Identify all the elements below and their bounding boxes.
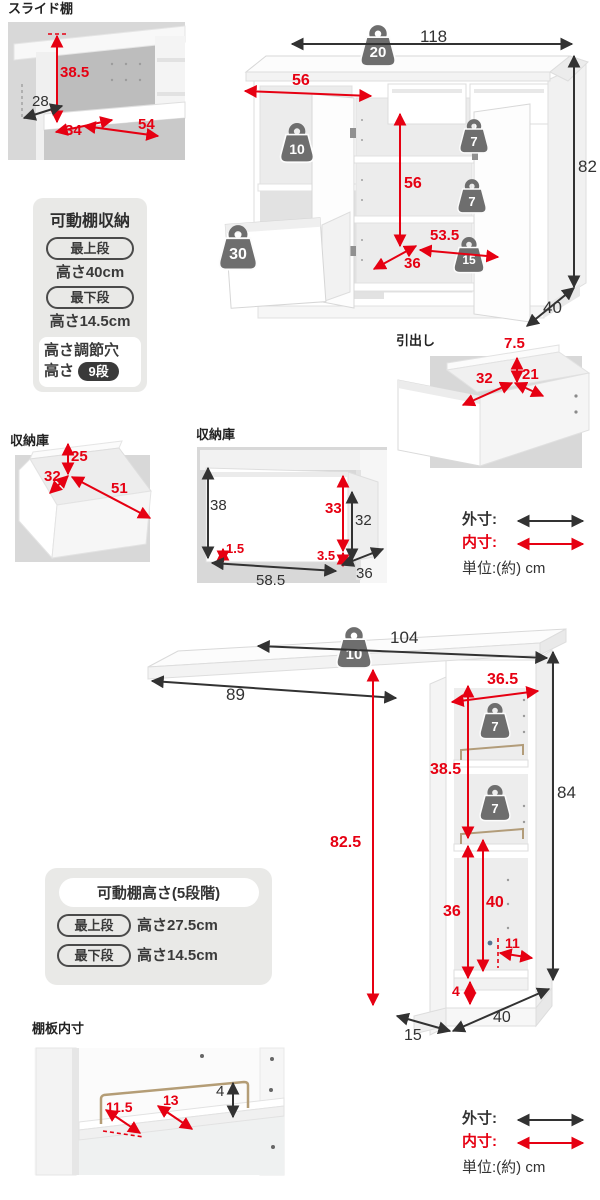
dim-drawer-width: 32 <box>476 371 493 386</box>
page: 20 10 7 7 15 30 10 7 7 可動棚収納 最上段 高さ40cm … <box>0 0 600 1200</box>
dim-counter-depth: 40 <box>493 1010 511 1026</box>
shelf-board-title: 棚板内寸 <box>32 1022 84 1035</box>
arrow-counter-overhang <box>152 681 396 698</box>
dim-counter-base-height: 4 <box>452 984 460 998</box>
arrow-open-width <box>245 91 371 96</box>
dim-inner-width: 53.5 <box>430 228 459 243</box>
dim-storage2-inner-height: 33 <box>325 501 342 516</box>
arrow-board-inner2 <box>158 1106 192 1129</box>
dim-board-inner1: 11.5 <box>106 1100 132 1114</box>
arrow-storage2-width <box>212 563 336 571</box>
dim-storage2-side-gap: 3.5 <box>317 549 335 562</box>
dim-storage1-height: 25 <box>71 449 88 464</box>
dim-cabinet-width: 118 <box>420 28 447 45</box>
dim-open-width: 56 <box>292 73 310 89</box>
dim-cabinet-depth: 40 <box>543 299 562 316</box>
dim-inner-depth: 36 <box>404 256 421 271</box>
dim-counter-front-depth: 15 <box>404 1028 422 1044</box>
storage2-title: 収納庫 <box>196 428 235 441</box>
dim-counter-open-height: 36 <box>443 904 461 920</box>
dim-storage2-bottom-gap: 1.5 <box>226 542 244 555</box>
dim-counter-height: 84 <box>557 784 576 801</box>
arrow-counter-width <box>258 646 547 658</box>
dim-board-inner2: 13 <box>163 1093 179 1107</box>
dim-slide-front: 28 <box>32 94 49 109</box>
legend-outer-label: 外寸: <box>462 1111 497 1126</box>
dim-counter-top-width: 36.5 <box>487 672 518 688</box>
dim-storage2-width: 58.5 <box>256 573 285 588</box>
arrow-inner-width <box>420 250 498 257</box>
legend-unit: 単位:(約) cm <box>462 561 545 576</box>
dim-storage1-width: 32 <box>44 469 61 484</box>
legend-inner-label: 内寸: <box>462 535 497 550</box>
slide-shelf-title: スライド棚 <box>8 2 73 15</box>
dim-storage1-depth: 51 <box>111 481 128 496</box>
dim-storage2-depth: 36 <box>356 566 373 581</box>
legend-inner-label: 内寸: <box>462 1134 497 1149</box>
drawer-title: 引出し <box>396 334 435 347</box>
legend-outer-label: 外寸: <box>462 512 497 527</box>
arrow-counter-top-width <box>452 691 538 702</box>
dim-storage2-front-height: 38 <box>210 498 227 513</box>
dim-drawer-height: 7.5 <box>504 336 525 351</box>
legend-unit: 単位:(約) cm <box>462 1160 545 1175</box>
dim-counter-base-depth: 11 <box>505 936 520 950</box>
dim-slide-depth: 34 <box>65 123 82 138</box>
dim-door-height: 56 <box>404 176 422 192</box>
arrow-drawer-depth <box>515 383 543 396</box>
dim-board-rail-height: 4 <box>216 1084 224 1099</box>
dim-slide-height: 38.5 <box>60 65 89 80</box>
storage1-title: 収納庫 <box>10 434 49 447</box>
dim-counter-shelf-pitch: 38.5 <box>430 762 461 778</box>
dim-cabinet-height: 82 <box>578 158 597 175</box>
dim-slide-width: 54 <box>138 117 155 132</box>
dim-drawer-depth: 21 <box>522 367 539 382</box>
dim-counter-overhang: 89 <box>226 686 245 703</box>
arrow-storage2-depth <box>342 549 383 565</box>
dim-counter-width: 104 <box>390 629 418 646</box>
arrow-counter-base-depth <box>500 953 532 958</box>
dim-storage2-side-height: 32 <box>355 513 372 528</box>
dim-counter-open-full: 40 <box>486 895 504 911</box>
dim-counter-under-height: 82.5 <box>330 835 361 851</box>
